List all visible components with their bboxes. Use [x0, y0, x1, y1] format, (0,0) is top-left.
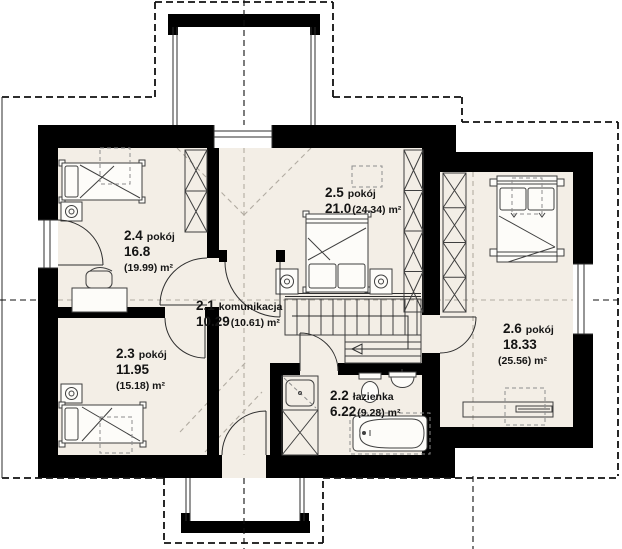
window-room-2-4	[38, 220, 58, 268]
double-bed-symbol	[490, 176, 564, 262]
floor-plan: 2.4pokój 16.8 (19.99) m² 2.3pokój 11.95 …	[0, 0, 622, 549]
svg-text:(25.56) m²: (25.56) m²	[498, 355, 548, 367]
double-bed-symbol	[303, 211, 371, 293]
svg-text:11.95: 11.95	[116, 362, 150, 377]
svg-text:10.29(10.61) m²: 10.29(10.61) m²	[196, 314, 280, 329]
svg-text:2.2łazienka: 2.2łazienka	[330, 388, 394, 403]
svg-text:2.3pokój: 2.3pokój	[116, 346, 167, 361]
bed-symbol	[59, 402, 146, 447]
svg-text:(19.99) m²: (19.99) m²	[124, 262, 174, 274]
nightstand-lamp-symbol	[61, 384, 82, 403]
nightstand-lamp-symbol	[276, 269, 298, 294]
svg-text:(15.18) m²: (15.18) m²	[116, 380, 166, 392]
dormer-bottom	[181, 478, 310, 533]
nightstand-lamp-symbol	[61, 202, 82, 221]
floor-plan-drawing: 2.4pokój 16.8 (19.99) m² 2.3pokój 11.95 …	[0, 0, 622, 549]
bed-symbol	[59, 160, 145, 203]
svg-text:6.22(9.28) m²: 6.22(9.28) m²	[330, 404, 401, 419]
svg-text:16.8: 16.8	[124, 244, 151, 259]
nightstand-lamp-symbol	[370, 269, 392, 294]
svg-text:21.0(24.34) m²: 21.0(24.34) m²	[325, 201, 402, 216]
bathtub-symbol	[350, 413, 430, 454]
svg-text:2.1komunikacja: 2.1komunikacja	[196, 298, 283, 313]
svg-text:18.33: 18.33	[503, 337, 537, 352]
window-dormer-top	[214, 125, 272, 148]
svg-text:2.5pokój: 2.5pokój	[325, 185, 376, 200]
window-room-2-6	[573, 264, 593, 334]
svg-text:2.4pokój: 2.4pokój	[124, 228, 175, 243]
svg-text:2.6pokój: 2.6pokój	[503, 321, 554, 336]
